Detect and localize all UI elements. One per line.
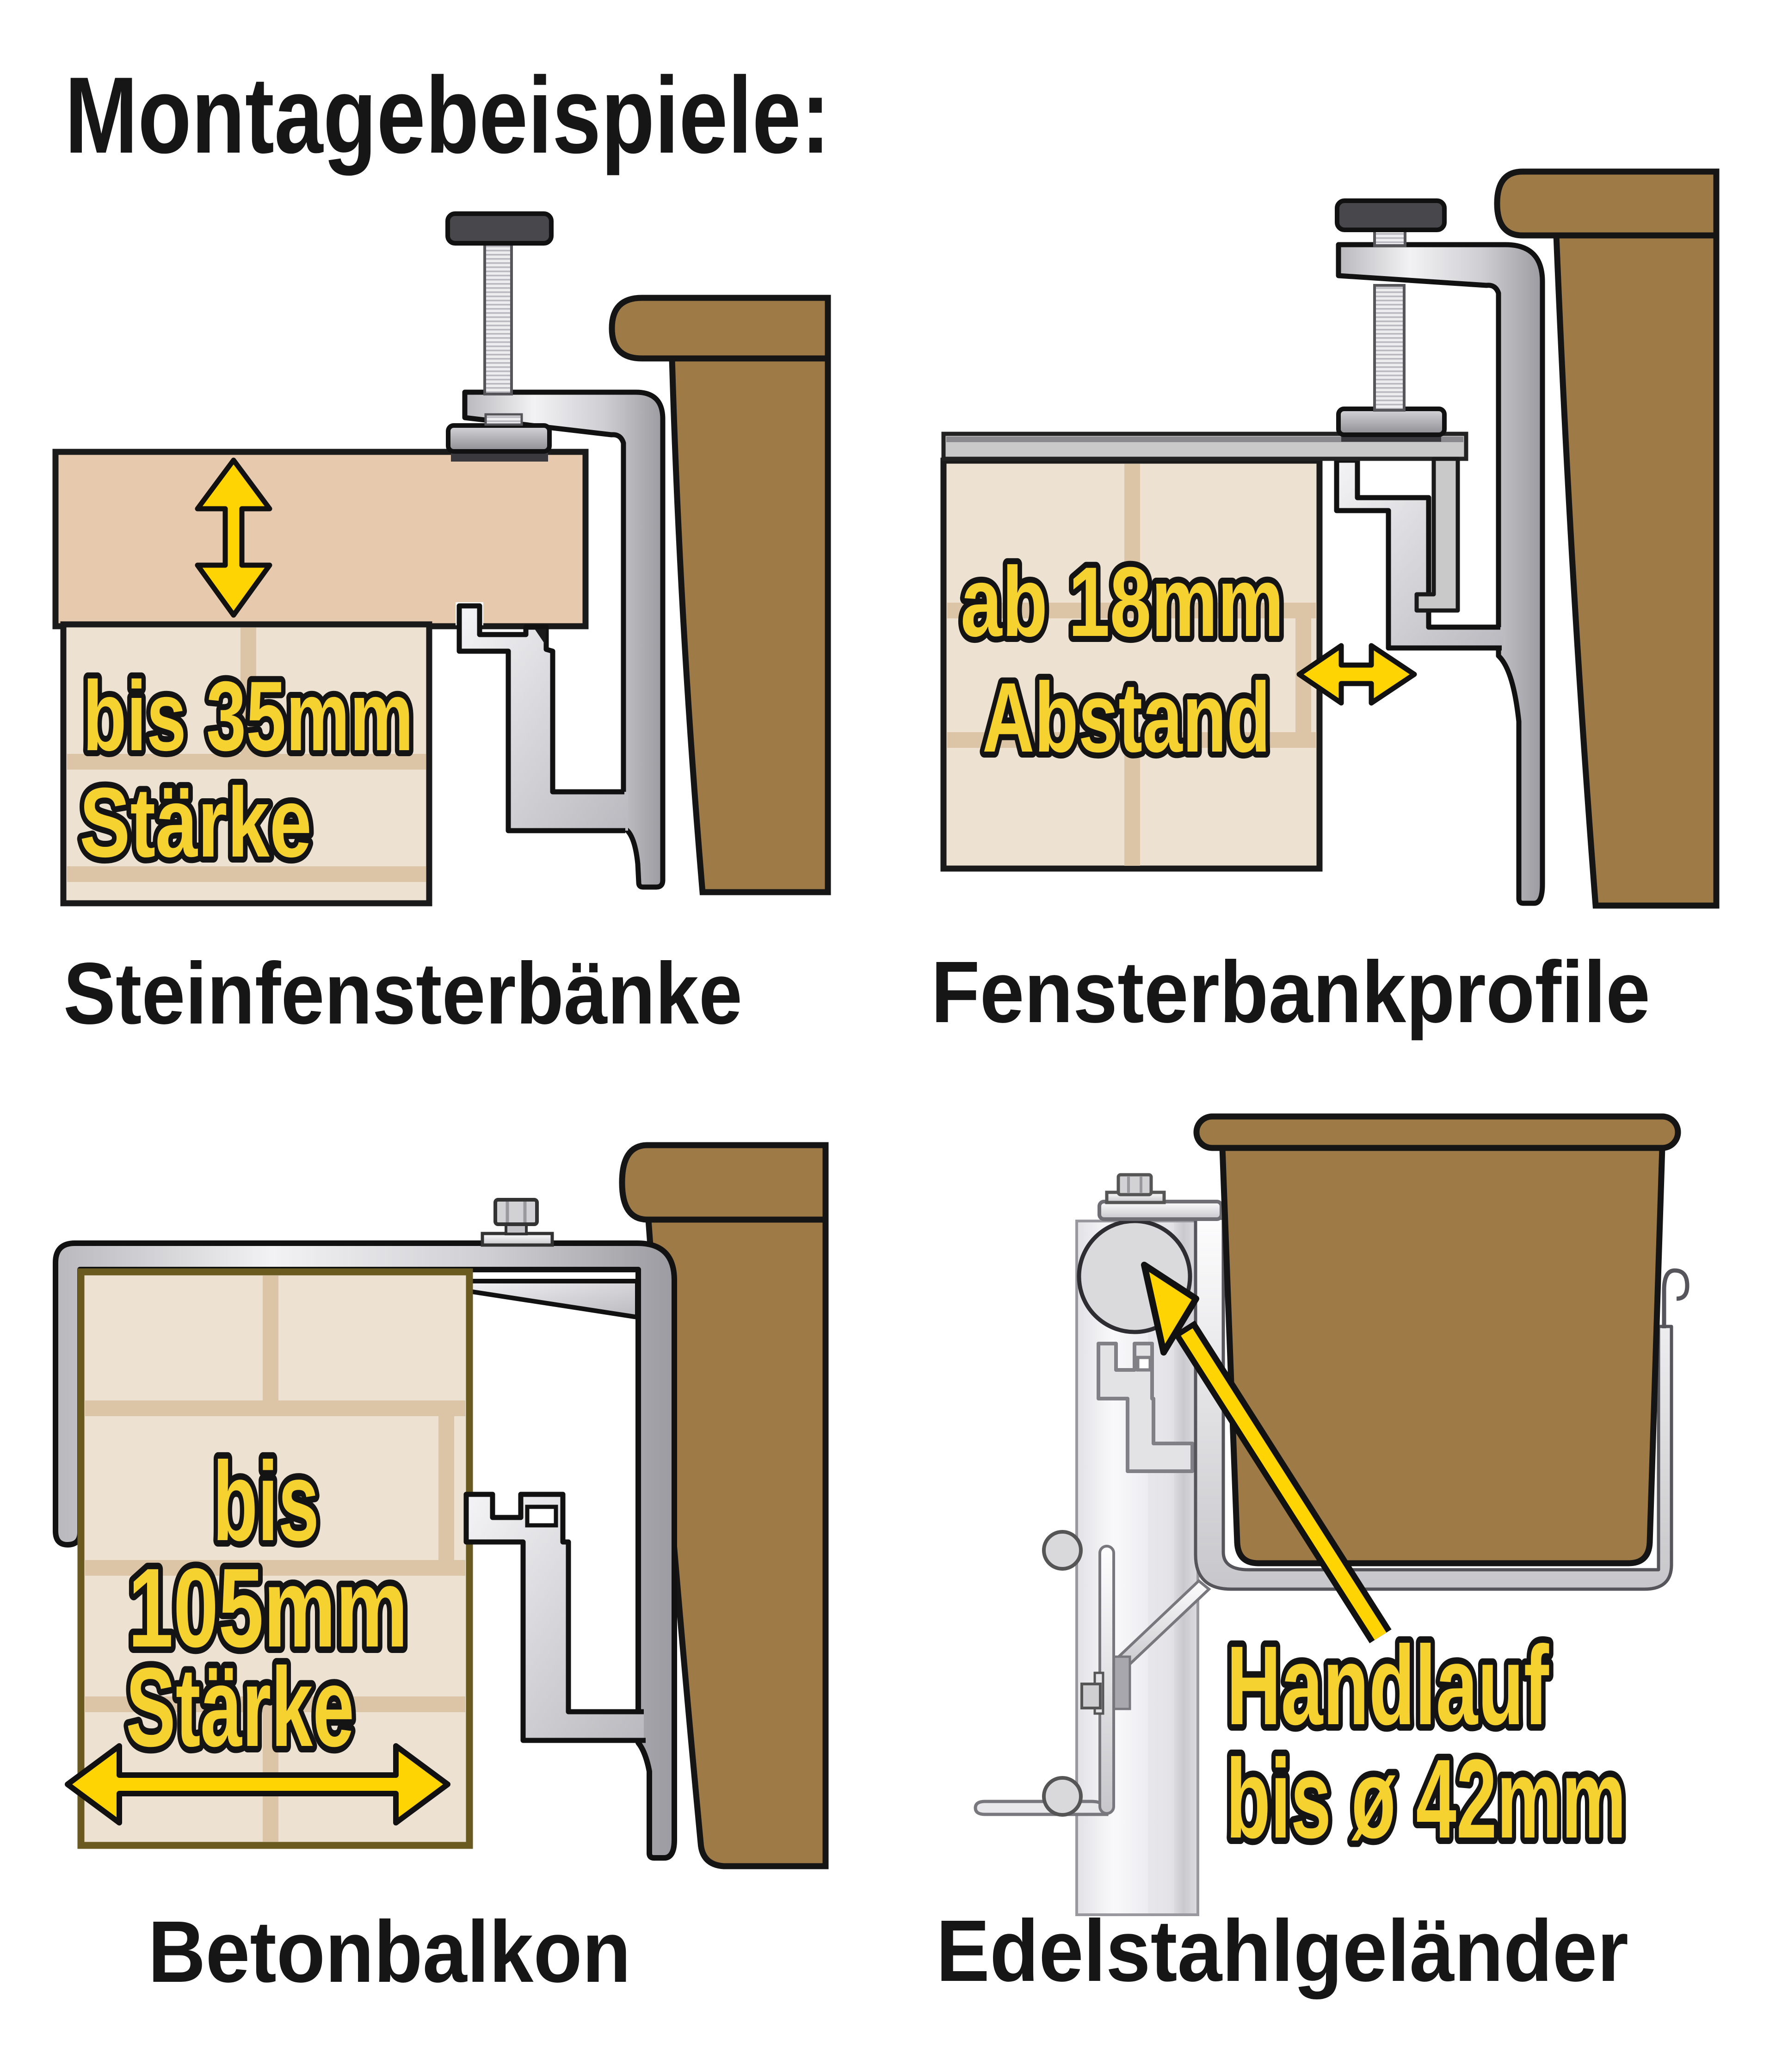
- svg-text:Edelstahlgeländer: Edelstahlgeländer: [936, 1902, 1628, 2000]
- svg-text:Stärke: Stärke: [80, 767, 312, 878]
- svg-text:Fensterbankprofile: Fensterbankprofile: [931, 943, 1650, 1041]
- svg-text:bis ø 42mm: bis ø 42mm: [1226, 1736, 1626, 1862]
- svg-text:Stärke: Stärke: [126, 1645, 354, 1770]
- svg-text:Montagebeispiele:: Montagebeispiele:: [65, 54, 830, 176]
- svg-text:ab 18mm: ab 18mm: [961, 547, 1284, 657]
- svg-text:Abstand: Abstand: [982, 662, 1270, 773]
- svg-text:Steinfensterbänke: Steinfensterbänke: [63, 945, 742, 1042]
- svg-text:Betonbalkon: Betonbalkon: [148, 1903, 631, 2001]
- svg-text:bis 35mm: bis 35mm: [83, 661, 413, 771]
- svg-text:Handlauf: Handlauf: [1227, 1623, 1549, 1748]
